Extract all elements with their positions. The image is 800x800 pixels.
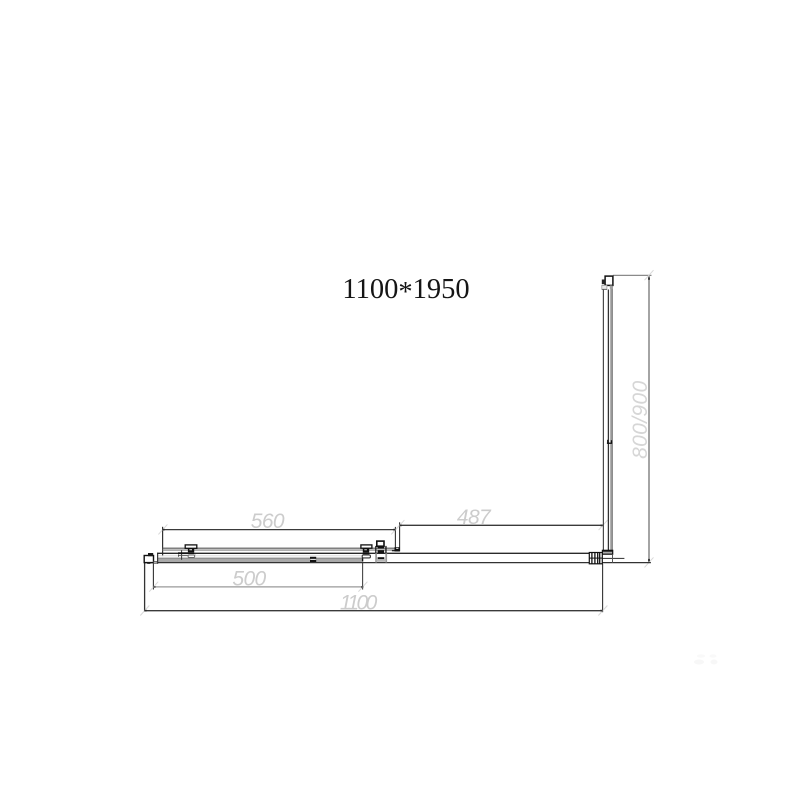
svg-text:1100*1950: 1100*1950 [342,274,469,308]
